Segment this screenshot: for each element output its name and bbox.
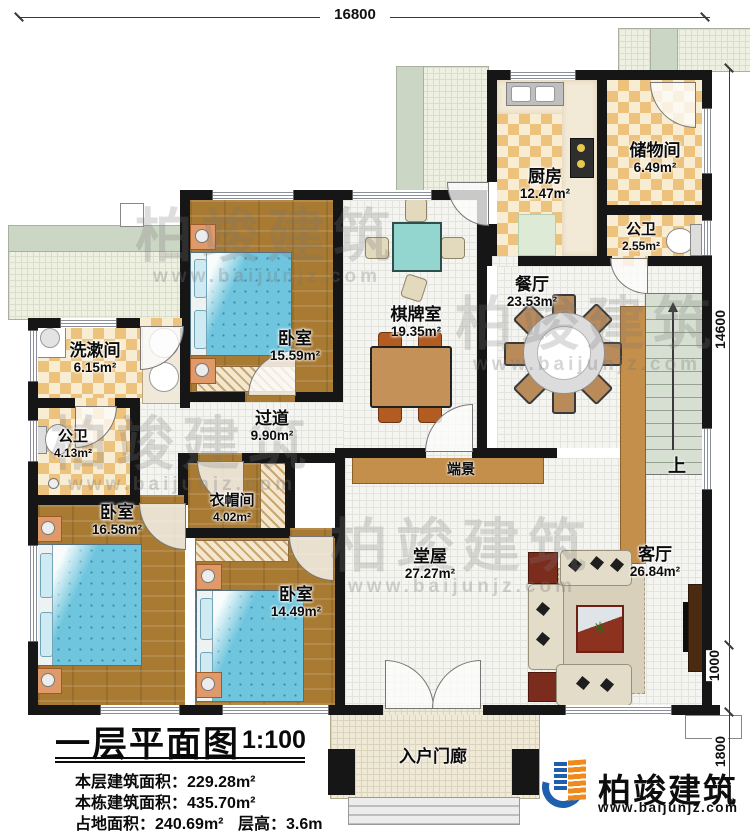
room-label-living: 客厅26.84m² xyxy=(630,546,680,579)
window xyxy=(28,545,38,642)
ac-unit xyxy=(120,203,144,227)
hallway-floor xyxy=(140,402,343,453)
brand-website: www.baijunjz.com xyxy=(598,800,739,815)
washer-drum xyxy=(40,328,60,348)
room-label-wash-room: 洗漱间6.15m² xyxy=(70,342,121,375)
window xyxy=(222,705,329,715)
staircase xyxy=(645,293,704,475)
window xyxy=(702,428,712,490)
terrace-top-left-band xyxy=(8,225,182,252)
nightstand xyxy=(36,668,62,694)
nightstand xyxy=(190,224,216,250)
wall xyxy=(180,190,190,328)
room-label-hallway: 过道9.90m² xyxy=(251,410,294,443)
window xyxy=(212,190,294,200)
logo-building-orange xyxy=(568,759,586,800)
window xyxy=(28,330,38,382)
brand-logo-icon xyxy=(542,760,592,816)
logo-building-blue xyxy=(554,762,567,792)
window xyxy=(352,190,432,200)
sofa-chaise xyxy=(556,664,632,706)
burner xyxy=(577,144,585,152)
room-label-game-room: 棋牌室19.35m² xyxy=(391,306,442,339)
room-label-bedroom3: 卧室14.49m² xyxy=(271,586,321,619)
wall xyxy=(597,205,712,215)
wardrobe-cloakroom xyxy=(260,463,288,529)
dim-right-value: 14600 xyxy=(712,310,728,349)
window xyxy=(28,420,38,462)
wall xyxy=(477,190,487,455)
tv-screen xyxy=(683,602,688,652)
stat-floor-height: 层高：3.6m xyxy=(238,810,322,834)
room-label-storage: 储物间6.49m² xyxy=(630,142,681,175)
wardrobe-bedroom3 xyxy=(195,540,289,562)
wall xyxy=(597,70,607,266)
patio-band xyxy=(396,66,424,192)
entry-steps xyxy=(348,797,520,825)
room-label-cloakroom: 衣帽间4.02m² xyxy=(209,492,254,525)
stairs-up-label: 上 xyxy=(668,452,686,478)
floor-plan-canvas: ✳ 厨房12.47m² 储物间6.49m² 公卫2.55m² 餐厅23.53m²… xyxy=(0,0,750,834)
nightstand xyxy=(36,516,62,542)
porch-label: 入户门廊 xyxy=(399,742,467,767)
plan-scale: 1:100 xyxy=(242,726,306,755)
nightstand xyxy=(196,564,222,590)
window xyxy=(100,705,180,715)
room-label-kitchen: 厨房12.47m² xyxy=(520,168,570,201)
room-label-bath-upper: 公卫2.55m² xyxy=(622,221,660,254)
window xyxy=(60,318,117,328)
mahjong-chair xyxy=(441,237,465,259)
stair-arrow-head xyxy=(668,302,678,312)
mahjong-chair xyxy=(405,198,427,222)
porch-column-left xyxy=(328,749,355,795)
floor-drain xyxy=(48,478,59,489)
dim-right-bottom-value: 1800 xyxy=(712,736,728,767)
side-table xyxy=(528,672,558,702)
side-table xyxy=(528,552,558,584)
toilet-tank xyxy=(690,224,702,256)
mahjong-table xyxy=(392,222,442,272)
sink-basin xyxy=(535,86,555,102)
window xyxy=(702,108,712,174)
stair-arrow-line xyxy=(672,310,674,450)
window xyxy=(702,220,712,256)
nightstand xyxy=(190,358,216,384)
window xyxy=(510,70,576,80)
wall xyxy=(285,453,295,538)
wall xyxy=(487,70,497,182)
plan-title: 一层平面图 xyxy=(55,716,240,767)
stat-land-area: 占地面积：240.69m² xyxy=(75,810,224,834)
room-label-bedroom1: 卧室15.59m² xyxy=(270,330,320,363)
window xyxy=(565,705,672,715)
sofa-left xyxy=(528,584,564,670)
room-label-hall: 堂屋27.27m² xyxy=(405,548,455,581)
hall-cabinet xyxy=(620,306,646,564)
room-label-bedroom2: 卧室16.58m² xyxy=(92,504,142,537)
room-label-dining: 餐厅23.53m² xyxy=(507,276,557,309)
coffee-table-plant: ✳ xyxy=(576,605,624,653)
porch-column-right xyxy=(512,749,539,795)
dining-table-top xyxy=(537,326,591,380)
dim-right-mid-value: 1000 xyxy=(706,650,722,681)
bed-bedroom2 xyxy=(36,544,142,666)
burner xyxy=(577,160,585,168)
room-label-bath-left: 公卫4.13m² xyxy=(54,428,92,461)
dim-top-value: 16800 xyxy=(320,6,390,23)
wall xyxy=(487,256,712,266)
terrace-top-right-band xyxy=(650,28,678,72)
kitchen-mat xyxy=(518,214,556,256)
mahjong-chair xyxy=(365,237,389,259)
wall xyxy=(130,398,140,505)
terrace-top-right xyxy=(618,28,750,72)
sink-basin xyxy=(511,86,531,102)
opening xyxy=(492,256,518,266)
nightstand xyxy=(196,672,222,698)
wall xyxy=(333,190,343,402)
tea-table xyxy=(370,346,452,408)
dim-line-right xyxy=(729,68,730,800)
wall xyxy=(335,448,345,715)
title-rule xyxy=(55,757,305,759)
